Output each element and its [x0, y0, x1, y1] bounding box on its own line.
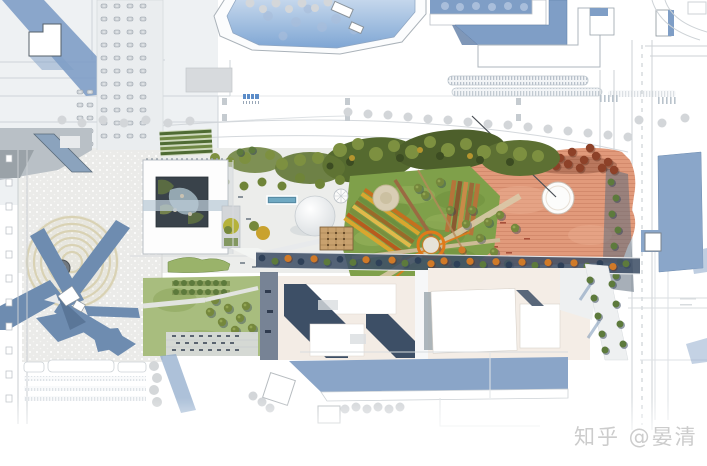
office-block-b — [424, 268, 600, 360]
dark-street-west — [260, 272, 278, 360]
watermark: 知乎 @晏清 — [574, 421, 698, 451]
southwest-lawn-block — [143, 276, 260, 356]
museum-side-garden — [222, 206, 240, 248]
tan-circle-plaza — [373, 185, 399, 211]
timber-deck-pavilion — [320, 227, 353, 250]
museum-courtyard-building — [143, 159, 233, 254]
parking-lot-southwest-small — [166, 332, 258, 356]
reflecting-pool — [267, 196, 297, 204]
umbrella-tent — [334, 189, 348, 203]
green-mound — [168, 257, 230, 272]
site-plan-image: 知乎 @晏清 — [0, 0, 707, 466]
hedge-garden — [159, 129, 212, 157]
masterplan-svg — [0, 0, 707, 466]
office-block-a — [278, 276, 418, 360]
